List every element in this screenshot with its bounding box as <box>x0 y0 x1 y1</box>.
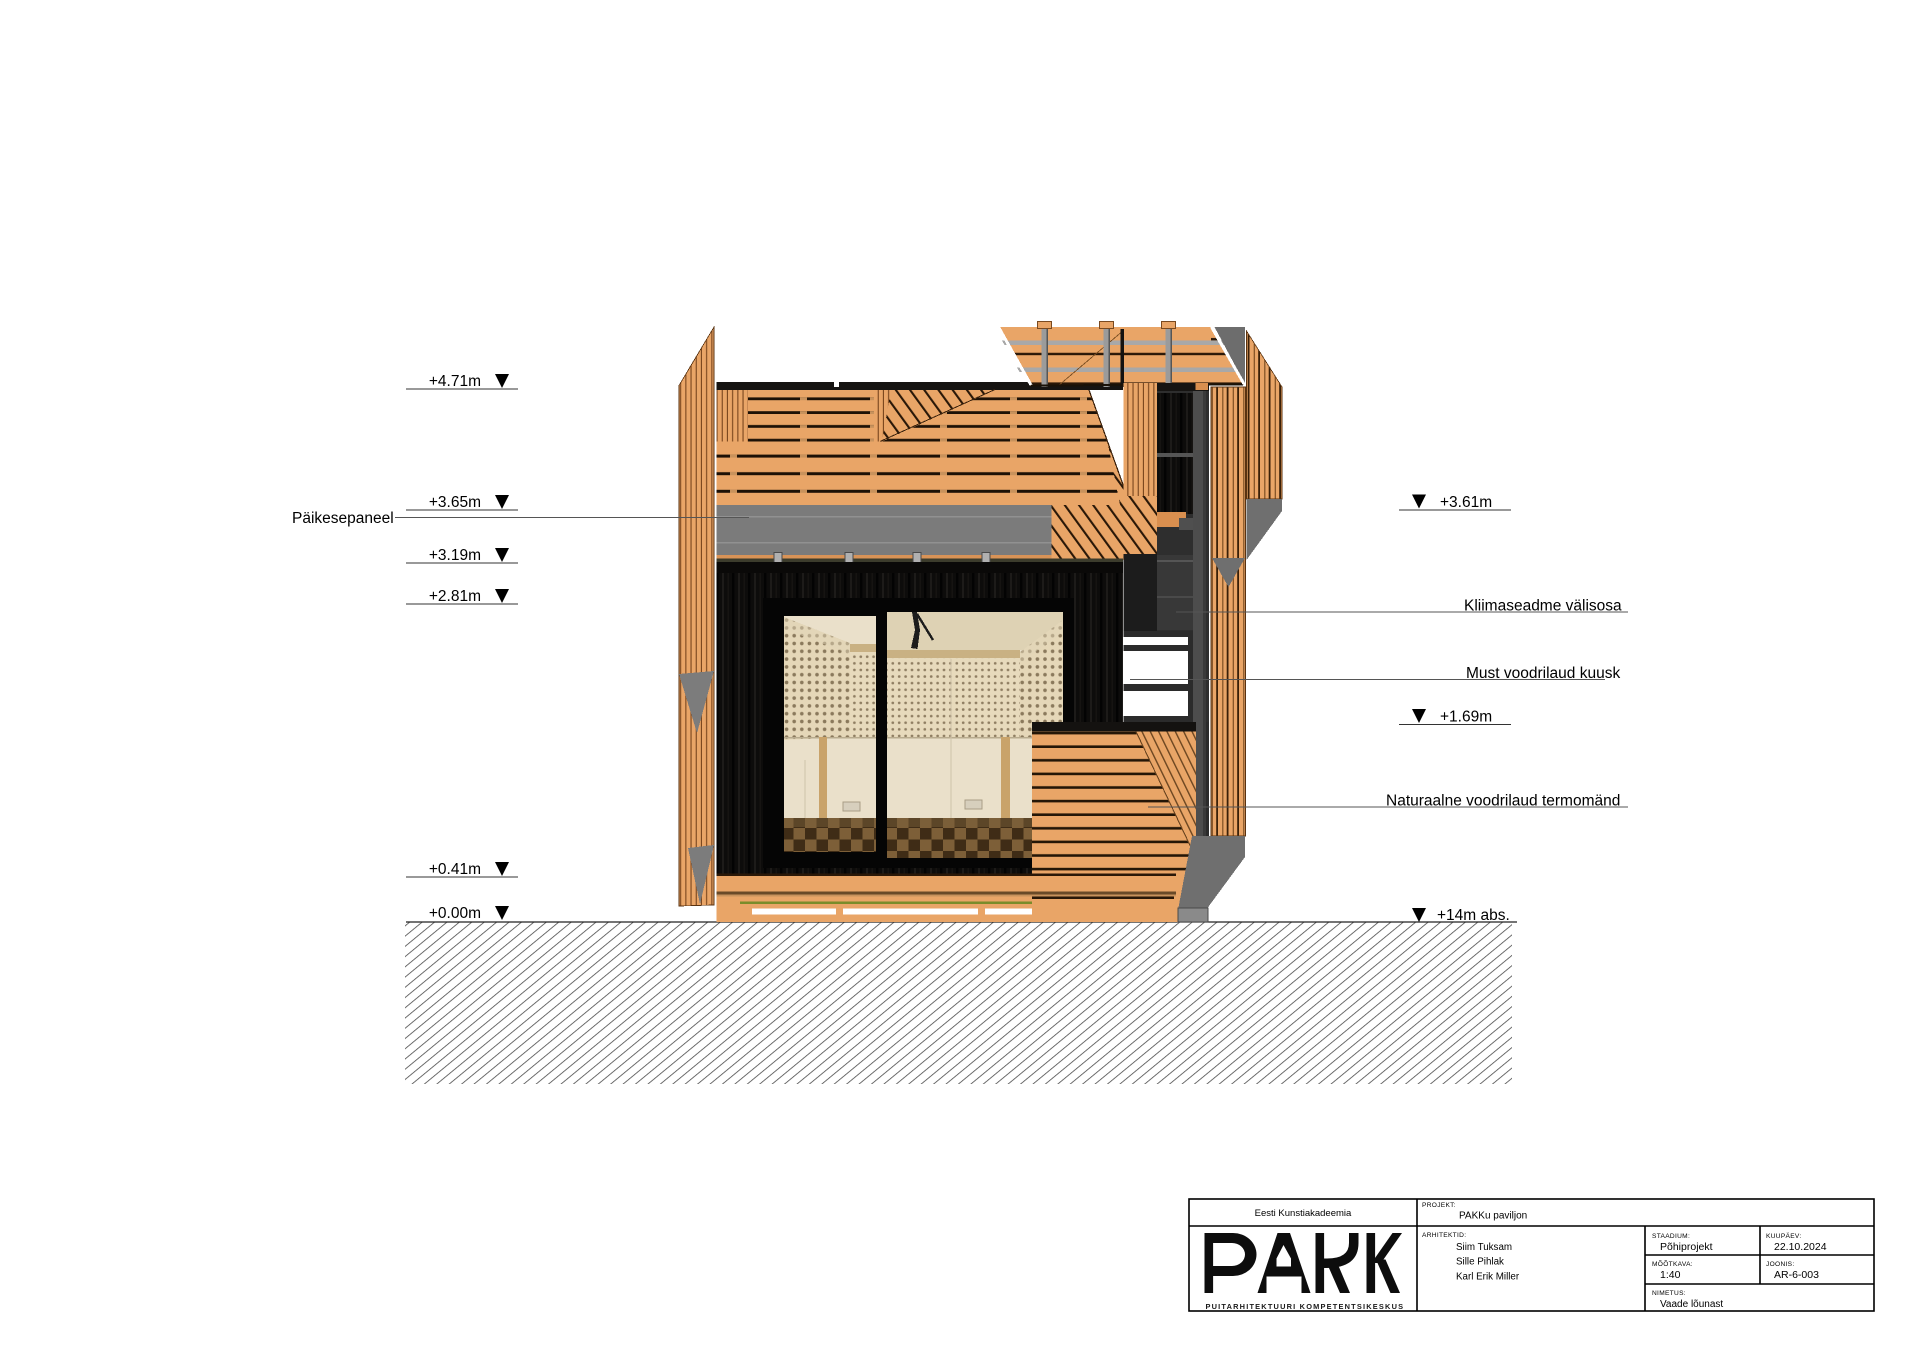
svg-text:+0.00m: +0.00m <box>429 905 481 922</box>
svg-text:22.10.2024: 22.10.2024 <box>1774 1241 1827 1253</box>
svg-text:NIMETUS:: NIMETUS: <box>1652 1290 1686 1297</box>
svg-text:MÕÕTKAVA:: MÕÕTKAVA: <box>1652 1259 1693 1268</box>
svg-text:PUITARHITEKTUURI KOMPETENTSIKE: PUITARHITEKTUURI KOMPETENTSIKESKUS <box>1206 1302 1405 1311</box>
svg-text:+3.19m: +3.19m <box>429 547 481 564</box>
svg-text:+1.69m: +1.69m <box>1440 709 1492 726</box>
svg-text:+14m abs.: +14m abs. <box>1437 907 1510 924</box>
svg-text:Põhiprojekt: Põhiprojekt <box>1660 1241 1713 1253</box>
svg-text:+3.65m: +3.65m <box>429 494 481 511</box>
svg-text:1:40: 1:40 <box>1660 1269 1681 1281</box>
svg-text:+3.61m: +3.61m <box>1440 494 1492 511</box>
svg-text:PAKKu paviljon: PAKKu paviljon <box>1459 1211 1527 1222</box>
svg-text:Sille Pihlak: Sille Pihlak <box>1456 1257 1504 1268</box>
svg-text:STAADIUM:: STAADIUM: <box>1652 1233 1690 1240</box>
svg-text:ARHITEKTID:: ARHITEKTID: <box>1422 1232 1466 1239</box>
svg-text:+2.81m: +2.81m <box>429 588 481 605</box>
svg-text:AR-6-003: AR-6-003 <box>1774 1269 1819 1281</box>
svg-text:+0.41m: +0.41m <box>429 861 481 878</box>
svg-text:KUUPÄEV:: KUUPÄEV: <box>1766 1232 1802 1240</box>
svg-text:+4.71m: +4.71m <box>429 373 481 390</box>
svg-text:Vaade lõunast: Vaade lõunast <box>1660 1299 1723 1310</box>
svg-text:PROJEKT:: PROJEKT: <box>1422 1202 1456 1209</box>
svg-text:Karl Erik Miller: Karl Erik Miller <box>1456 1271 1520 1282</box>
svg-text:Eesti Kunstiakadeemia: Eesti Kunstiakadeemia <box>1255 1208 1352 1219</box>
svg-text:Siim Tuksam: Siim Tuksam <box>1456 1242 1512 1253</box>
svg-text:Päikesepaneel: Päikesepaneel <box>292 510 394 527</box>
svg-text:JOONIS:: JOONIS: <box>1766 1261 1794 1268</box>
